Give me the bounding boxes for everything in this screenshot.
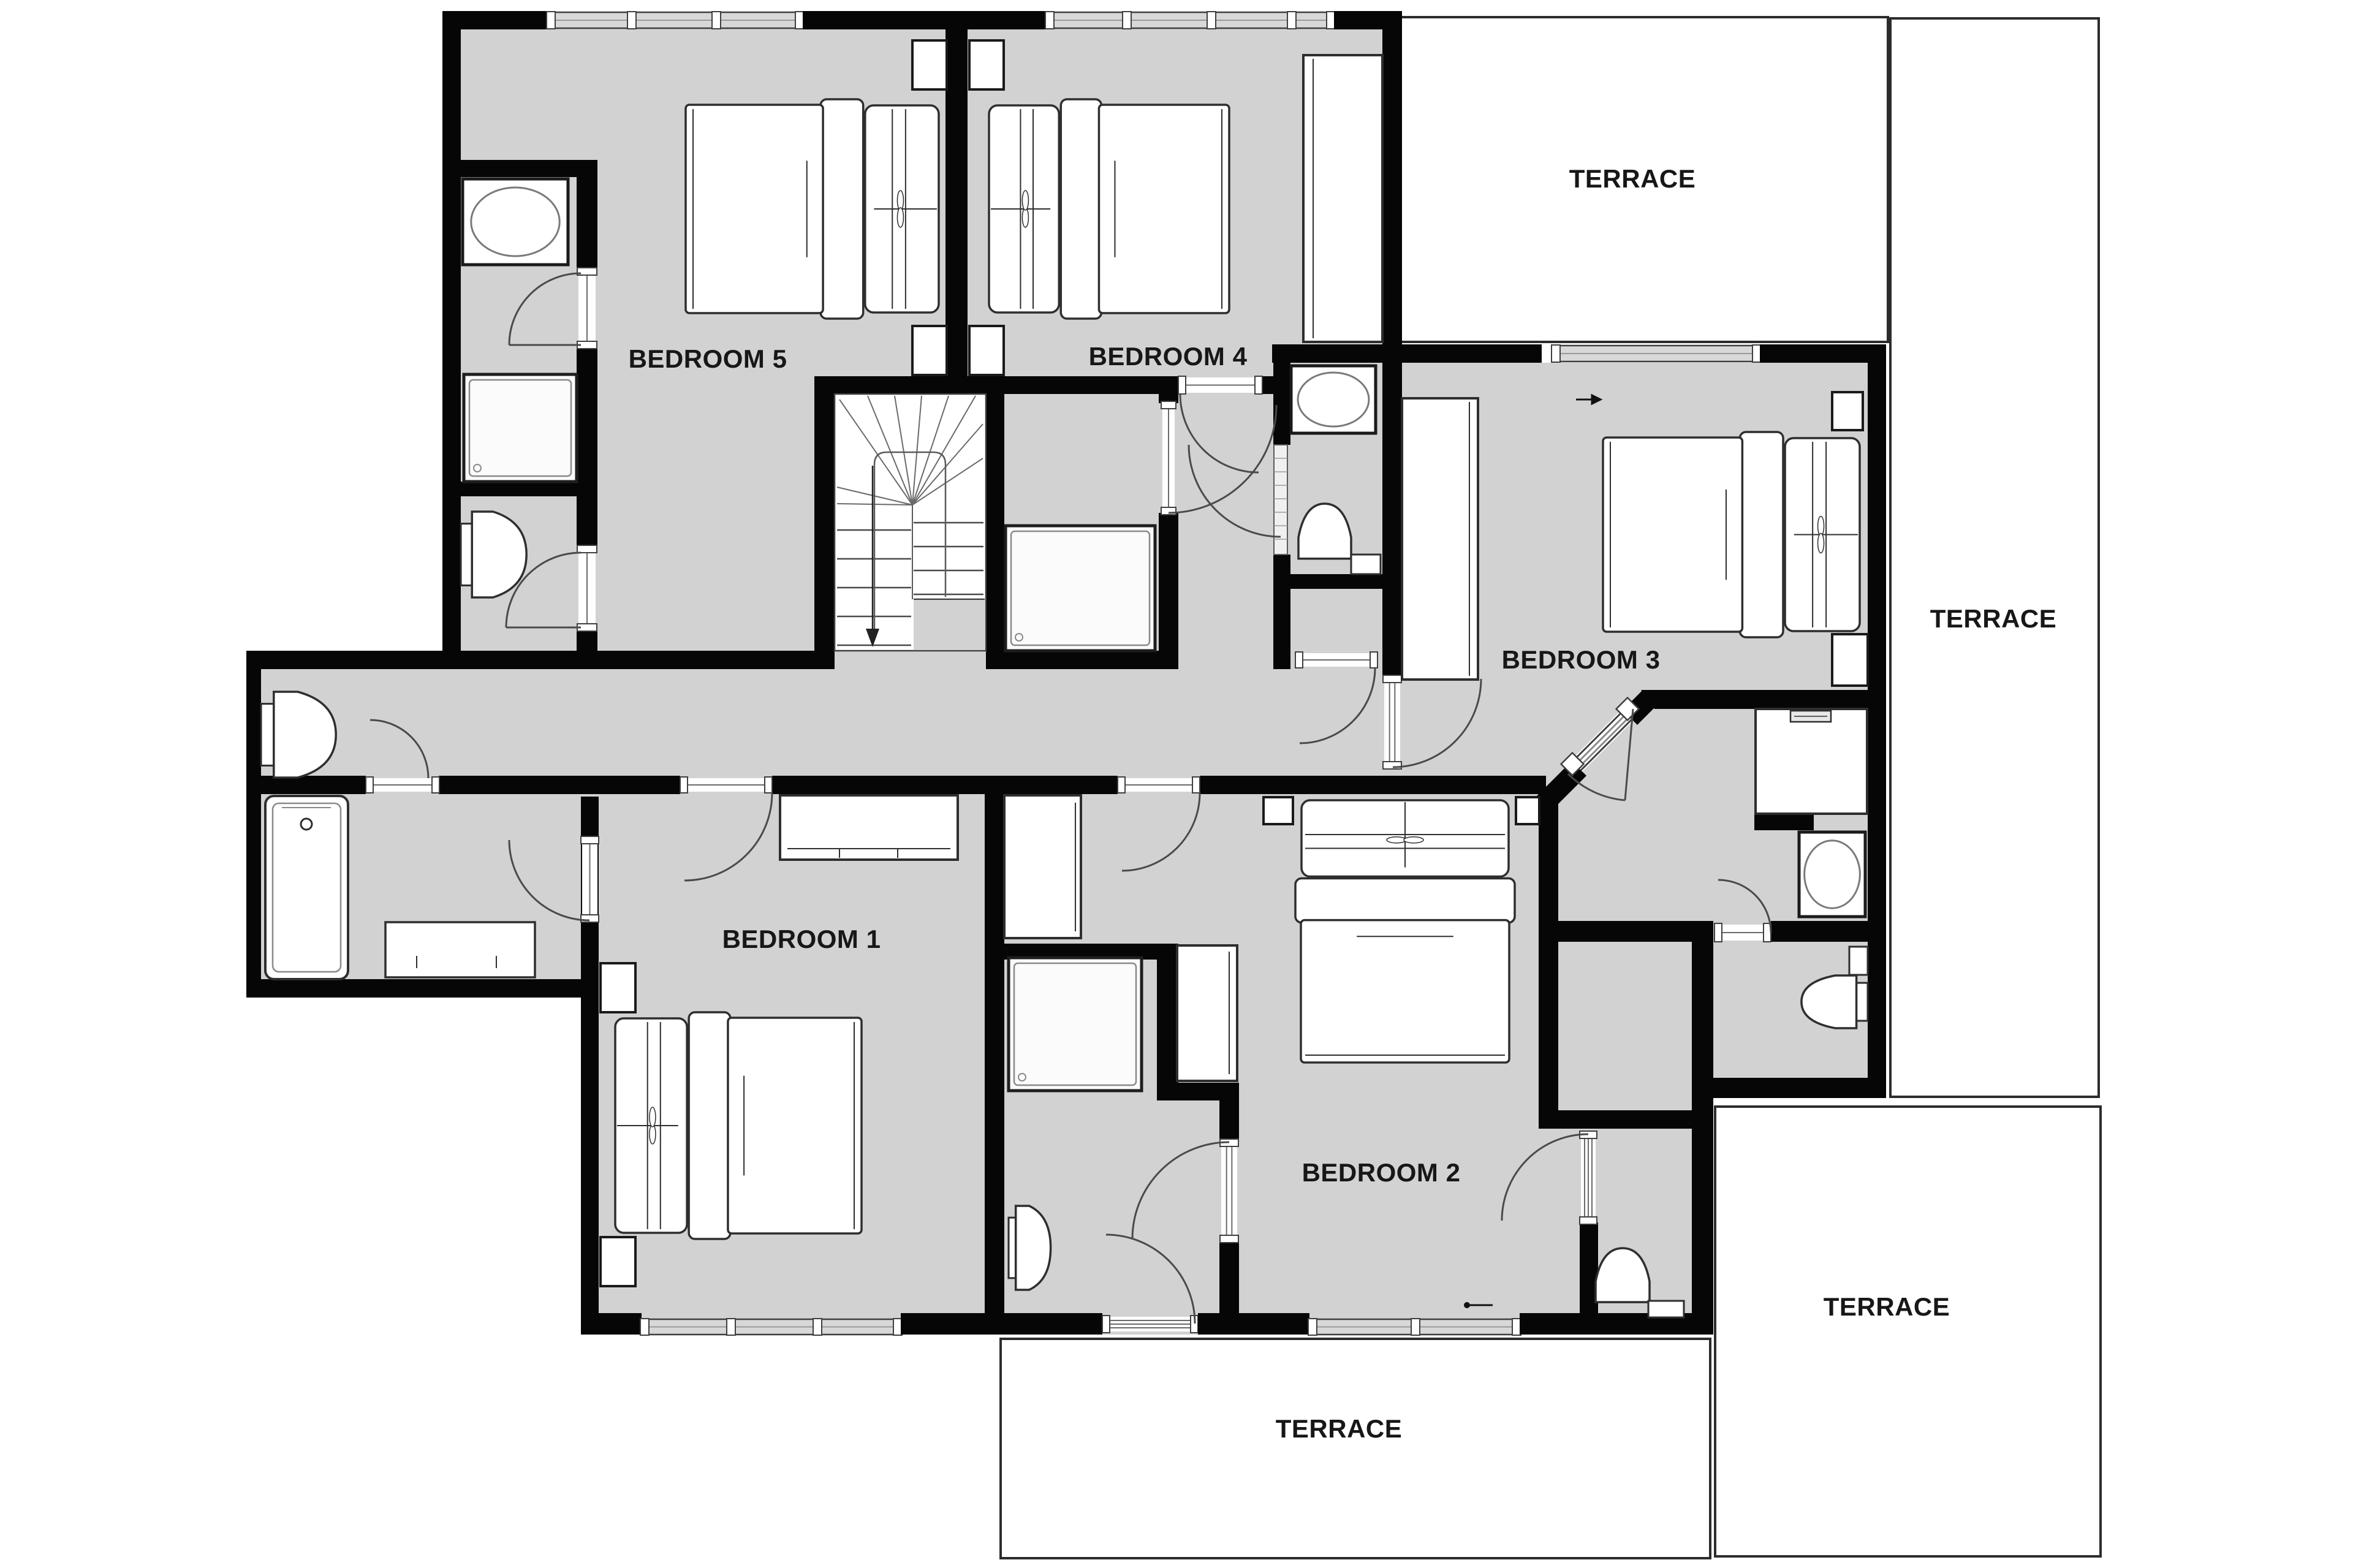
svg-text:BEDROOM 4: BEDROOM 4: [1089, 342, 1248, 371]
svg-text:TERRACE: TERRACE: [1930, 604, 2057, 633]
svg-text:TERRACE: TERRACE: [1824, 1292, 1950, 1321]
svg-text:BEDROOM 2: BEDROOM 2: [1302, 1158, 1461, 1187]
svg-text:BEDROOM 5: BEDROOM 5: [629, 344, 787, 373]
svg-text:BEDROOM 1: BEDROOM 1: [722, 925, 881, 953]
svg-text:TERRACE: TERRACE: [1569, 164, 1696, 193]
svg-text:BEDROOM 3: BEDROOM 3: [1502, 645, 1661, 674]
svg-text:TERRACE: TERRACE: [1276, 1414, 1403, 1443]
